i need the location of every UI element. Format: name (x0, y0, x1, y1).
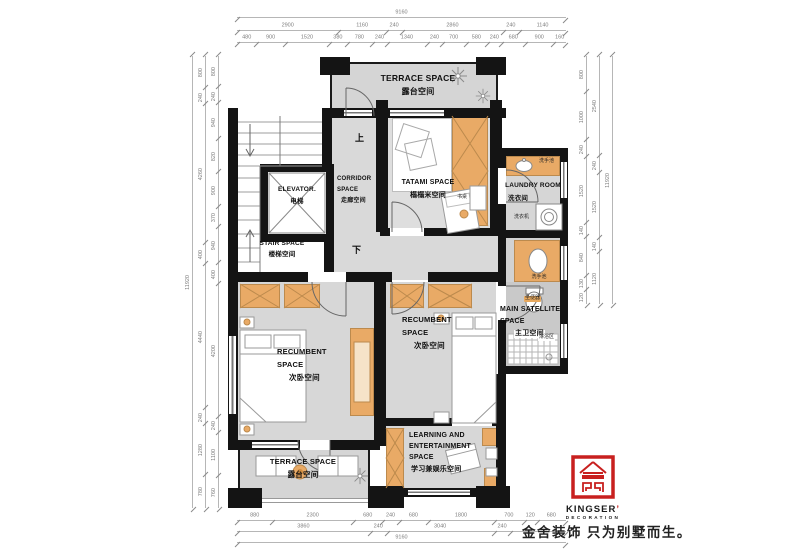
label-learning-cn: 学习兼娱乐空间 (411, 466, 461, 474)
logo-tagline: 金舍装饰 只为别墅而生。 (522, 521, 692, 541)
tatami-cushions (395, 124, 436, 171)
bed-right (434, 313, 496, 423)
label-stairs-down: 下 (352, 246, 361, 256)
kingser-logo: KINGSER’ DECORATION (564, 454, 622, 521)
label-bed-left-cn: 次卧空间 (289, 374, 320, 382)
door-swings (298, 88, 540, 472)
label-bed-right-en2: SPACE (402, 329, 428, 337)
desk-shelf (354, 342, 370, 402)
label-bed-left-en2: SPACE (277, 361, 303, 369)
label-stairs-up: 上 (355, 134, 364, 144)
label-learning-en2: ENTERTAINMENT (409, 443, 471, 451)
label-tatami-en: TATAMI SPACE (390, 179, 466, 187)
label-laundry-en: LAUNDRY ROOM (502, 182, 564, 189)
label-washer: 洗衣机 (514, 215, 529, 221)
label-tatami-cn: 榻榻米空间 (390, 192, 466, 200)
label-bed-left-en1: RECUMBENT (277, 348, 327, 356)
label-main-bath-en2: SPACE (500, 318, 525, 326)
stairs (238, 116, 322, 272)
label-terrace-top-en: TERRACE SPACE (352, 74, 484, 83)
label-basin-laundry: 洗手池 (539, 159, 554, 165)
label-learning-en3: SPACE (409, 454, 434, 462)
label-bed-right-cn: 次卧空间 (414, 342, 445, 350)
label-shower: 淋浴区 (538, 335, 555, 341)
kingser-logo-mark (570, 454, 616, 500)
label-stair-en: STAIR SPACE (242, 240, 322, 247)
label-terrace-bottom-cn: 露台空间 (250, 471, 356, 479)
label-elevator-cn: 电梯 (264, 198, 330, 205)
label-terrace-top-cn: 露台空间 (352, 88, 484, 97)
label-main-bath-en1: MAIN SATELLITE (500, 306, 560, 314)
linework-overlay (0, 0, 800, 560)
label-laundry-cn: 洗衣间 (508, 195, 528, 202)
label-corridor-en1: CORRIDOR (337, 176, 371, 183)
logo-brand: KINGSER’ (564, 505, 622, 515)
label-stair-cn: 楼梯空间 (242, 251, 322, 258)
label-terrace-bottom-en: TERRACE SPACE (250, 458, 356, 466)
label-desk: 书桌 (457, 195, 467, 201)
label-toilet: 坐便器 (524, 296, 541, 302)
bath-fixtures (526, 249, 547, 312)
label-corridor-cn: 走廊空间 (341, 198, 366, 205)
label-learning-en1: LEARNING AND (409, 432, 465, 440)
label-bed-right-en1: RECUMBENT (402, 316, 452, 324)
label-basin-bath: 洗手池 (528, 275, 550, 281)
logo-mark-quote: ’ (616, 504, 620, 515)
floor-plan-canvas: 9160 2900116024028602401140 480900152038… (0, 0, 800, 560)
label-elevator-en: ELEVATOR. (264, 186, 330, 193)
label-corridor-en2: SPACE (337, 187, 358, 194)
